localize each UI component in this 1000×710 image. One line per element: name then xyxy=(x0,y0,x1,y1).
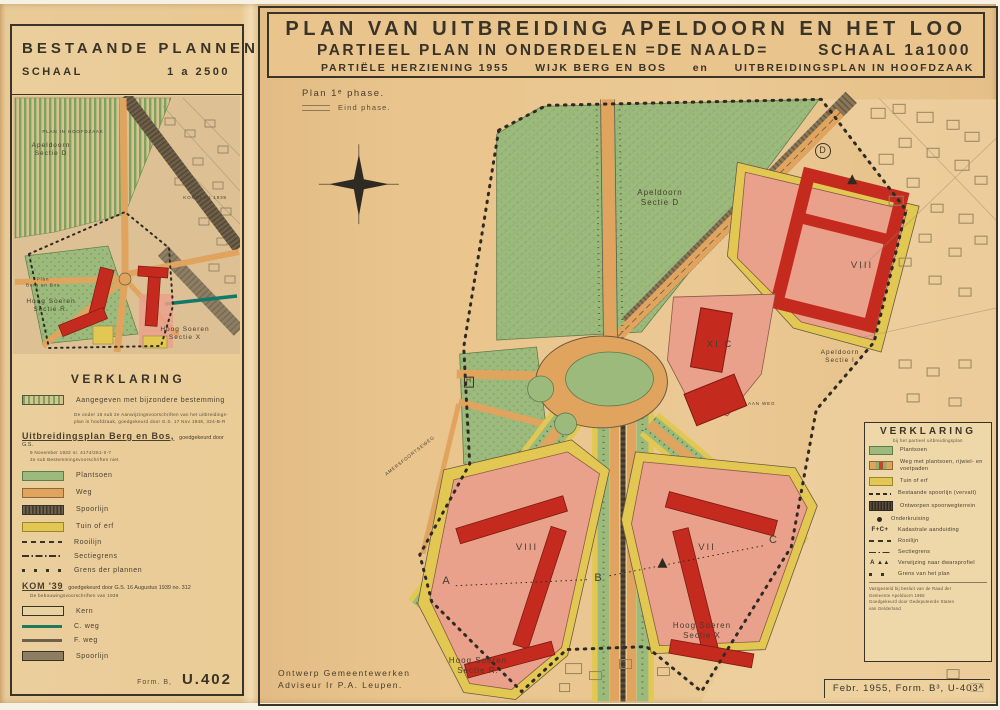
swatch-bullet-dot xyxy=(869,516,891,523)
swatch-yellow xyxy=(869,477,893,486)
swatch-orange xyxy=(22,488,64,498)
subtitle-left: PARTIEEL PLAN IN ONDERDELEN =DE NAALD= xyxy=(317,42,769,60)
legend-notes: Vastgesteld bij besluit van de Raad der … xyxy=(869,582,987,612)
swatch-rail-hatch xyxy=(869,501,893,511)
marker-a: A xyxy=(442,575,451,589)
scale-label: SCHAAL xyxy=(22,66,83,78)
swatch-green-line xyxy=(22,625,62,628)
swatch-green xyxy=(869,446,893,455)
mini-label-plan-in-hoofdzaak: PLAN IN HOOFDZAAK xyxy=(42,129,103,135)
legend-row-spoorlijn: Spoorlijn xyxy=(22,505,234,515)
compass-rose xyxy=(319,144,399,224)
legend-row-ontworpen-spoorwegterrein: Ontworpen spoorwegterrein xyxy=(869,501,987,511)
marker-c: C xyxy=(769,534,779,548)
legend-heading-kom39: KOM '39 goedgekeurd door G.S. 16 Augustu… xyxy=(22,581,234,591)
swatch-profile-glyph: A ▲▲ xyxy=(869,560,891,566)
swatch-dashdot-line xyxy=(22,555,62,557)
legend-row-tuin-of-erf: Tuin of erf xyxy=(869,477,987,486)
marker-h: H xyxy=(464,377,474,388)
legend-row-bijzondere-bestemming: Aangegeven met bijzondere bestemming xyxy=(22,395,234,405)
legend-row-rooilijn: Rooilijn xyxy=(22,539,234,546)
swatch-green-striped xyxy=(22,395,64,405)
label-block-vii: VII xyxy=(698,542,716,554)
swatch-dark-hatch xyxy=(22,505,64,515)
mini-label-apeldoorn-sectie: Apeldoorn Sectie D xyxy=(32,142,71,158)
overview-mini-map: PLAN IN HOOFDZAAK Apeldoorn Sectie D KOM… xyxy=(13,96,240,354)
legend-note: plan in hoofdzaak, goedgekeurd door G.S.… xyxy=(74,419,234,426)
swatch-dashdot-line xyxy=(869,552,891,554)
label-apeldoorn-sectie-d: Apeldoorn Sectie D xyxy=(637,188,682,208)
legend-row-c-weg: C. weg xyxy=(22,623,234,630)
legend-row-weg-met-plantsoen: Weg met plantsoen, rijwiel- en voetpaden xyxy=(869,459,987,472)
title-block: PLAN VAN UITBREIDING APELDOORN EN HET LO… xyxy=(267,12,985,78)
swatch-kadaster-glyph: F+C+ xyxy=(869,527,891,533)
expansion-plan-panel: PLAN VAN UITBREIDING APELDOORN EN HET LO… xyxy=(258,6,998,706)
end-phase-label: Eind phase. xyxy=(338,103,391,112)
end-phase-row: Eind phase. xyxy=(302,103,391,112)
swatch-black-dashed xyxy=(869,493,891,495)
legend-row-f-weg: F. weg xyxy=(22,637,234,644)
existing-plans-panel: BESTAANDE PLANNEN SCHAAL 1 a 2500 xyxy=(10,24,244,696)
legend-row-plantsoen: Plantsoen xyxy=(869,446,987,455)
left-panel-title: BESTAANDE PLANNEN xyxy=(22,40,259,57)
legend-note: 2e sub Bestemmingsvoorschriften niet xyxy=(30,457,234,464)
legend-heading-berg-en-bos: Uitbreidingsplan Berg en Bos, goedgekeur… xyxy=(22,431,234,448)
legend-note: 9 November 1932 nr. 4174/281-II-7 xyxy=(30,450,234,457)
legend-note: De bebouwingsvoorschriften van 1939 xyxy=(30,593,234,600)
subtitle-scale: SCHAAL 1a1000 xyxy=(818,42,971,60)
label-hoog-soeren-sectie-r: Hoog Soeren Sectie R. xyxy=(449,656,507,676)
legend-row-onderkruising: Onderkruising xyxy=(869,516,987,523)
label-block-viii-ne: VIII xyxy=(851,260,873,272)
legend-row-plantsoen: Plantsoen xyxy=(22,471,234,481)
label-apeldoorn-sectie-i: Apeldoorn Sectie I xyxy=(821,349,860,365)
legend-row-kern: Kern xyxy=(22,606,234,616)
swatch-yellow xyxy=(22,522,64,532)
left-panel-header: BESTAANDE PLANNEN SCHAAL 1 a 2500 xyxy=(12,26,242,95)
legend-note: De onder 15 sub 2e Aanwijzingsvoorschrif… xyxy=(74,412,234,419)
swatch-dotted-line xyxy=(869,573,891,576)
swatch-dashed-line xyxy=(869,540,891,542)
swatch-road-multi xyxy=(869,461,893,470)
marker-d: D xyxy=(815,143,831,159)
legend-row-grens-van-het-plan: Grens van het plan xyxy=(869,571,987,578)
swatch-dotted-line xyxy=(22,569,62,572)
legend-row-spoorlijn-2: Spoorlijn xyxy=(22,651,234,661)
legend-row-weg: Weg xyxy=(22,488,234,498)
street-label-laan-weg: LAAN WEG xyxy=(745,401,776,407)
legend-row-bestaande-spoorlijn: Bestaande spoorlijn (vervalt) xyxy=(869,490,987,497)
label-hoog-soeren-sectie-x: Hoog Soeren Sectie X xyxy=(673,621,731,641)
swatch-green xyxy=(22,471,64,481)
mini-label-hoog-soeren-x: Hoog Soeren Sectie X xyxy=(160,326,209,342)
legend-row-grens-der-plannen: Grens der plannen xyxy=(22,567,234,574)
scale-value: 1 a 2500 xyxy=(167,66,230,78)
plan-legend-title: VERKLARING xyxy=(869,426,987,437)
scanned-plan-sheet: BESTAANDE PLANNEN SCHAAL 1 a 2500 xyxy=(0,0,1000,710)
left-legend: VERKLARING Aangegeven met bijzondere bes… xyxy=(22,372,234,668)
label-block-viii-sw: VIII xyxy=(516,542,538,554)
credits-line2: Adviseur Ir P.A. Leupen. xyxy=(278,679,410,692)
block-viii-sw xyxy=(418,440,610,700)
legend-row-tuin-of-erf: Tuin of erf xyxy=(22,522,234,532)
swatch-outline xyxy=(22,606,64,616)
mini-label-plan-berg-en-bos: Plan Berg en Bos xyxy=(26,276,60,287)
left-form-number: Form. B, U.402 xyxy=(137,671,232,688)
credits: Ontwerp Gemeentewerken Adviseur Ir P.A. … xyxy=(278,667,410,693)
legend-row-sectiegrens: Sectiegrens xyxy=(869,549,987,556)
left-panel-scale: SCHAAL 1 a 2500 xyxy=(22,66,230,78)
swatch-gray xyxy=(22,651,64,661)
credits-line1: Ontwerp Gemeentewerken xyxy=(278,667,410,680)
plan-legend-subtitle: bij het partieel uitbreidingsplan xyxy=(869,438,987,443)
left-legend-title: VERKLARING xyxy=(22,372,234,386)
plan-legend: VERKLARING bij het partieel uitbreidings… xyxy=(864,422,992,662)
sheet-title: PLAN VAN UITBREIDING APELDOORN EN HET LO… xyxy=(277,18,975,41)
swatch-dashed-line xyxy=(22,541,62,543)
swatch-gray-line xyxy=(22,639,62,642)
marker-b: B xyxy=(594,572,603,586)
mini-label-komplan: KOMPLAN 1939 xyxy=(183,195,227,201)
legend-row-sectiegrens: Sectiegrens xyxy=(22,553,234,560)
legend-row-dwarsprofiel: A ▲▲ Verwijzing naar dwarsprofiel xyxy=(869,560,987,567)
mini-label-hoog-soeren-r: Hoog Soeren Sectie R. xyxy=(26,298,75,314)
end-phase-line-sample xyxy=(302,105,330,111)
phase-legend: Plan 1ᵉ phase. Eind phase. xyxy=(302,88,391,112)
sheet-subtitle: PARTIEEL PLAN IN ONDERDELEN =DE NAALD= S… xyxy=(277,42,975,60)
phase1-label: Plan 1ᵉ phase. xyxy=(302,88,391,99)
legend-row-kadastrale-aanduiding: F+C+ Kadastrale aanduiding xyxy=(869,527,987,534)
right-form-number: Febr. 1955, Form. B³, U-403ᴬ xyxy=(824,679,990,698)
sheet-subtitle-2: PARTIËLE HERZIENING 1955 WIJK BERG EN BO… xyxy=(277,62,975,74)
legend-row-rooilijn: Rooilijn xyxy=(869,538,987,545)
label-block-xic: XI C xyxy=(707,339,733,351)
